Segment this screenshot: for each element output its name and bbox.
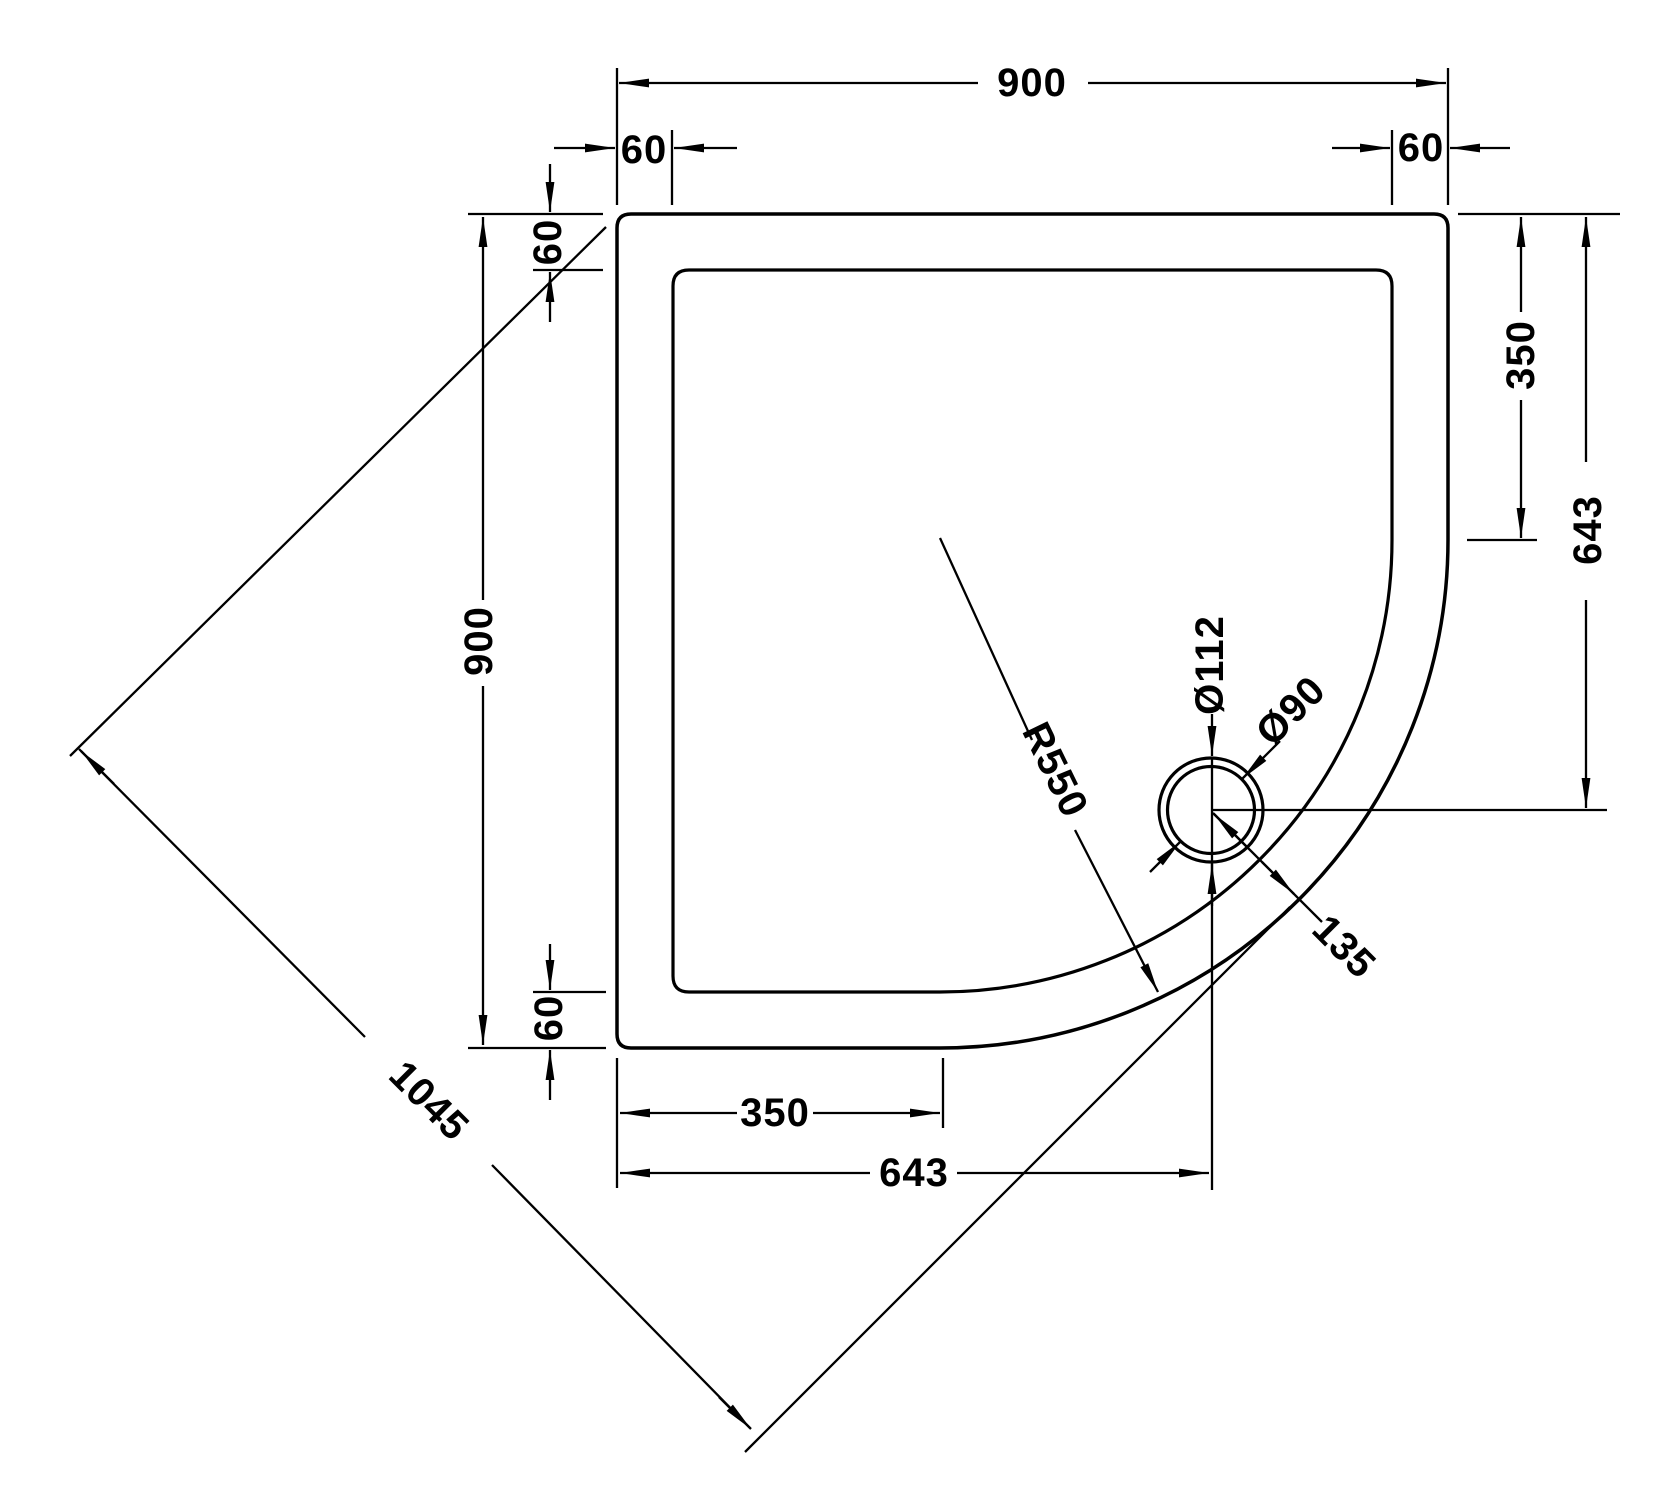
drawing-linework	[0, 0, 1653, 1499]
dim-right-drain-centre-label: 643	[1568, 495, 1608, 565]
dim-bottom-drain-centre-label: 643	[879, 1153, 949, 1193]
dim-bottom-curve-start-label: 350	[740, 1093, 810, 1133]
dim-left-bottom-inset-label: 60	[529, 995, 569, 1042]
dim-left-top-inset-label: 60	[528, 219, 568, 266]
dim-top-width-label: 900	[997, 63, 1067, 103]
dim-drain-outer-diameter-label: Ø112	[1190, 615, 1230, 715]
dim-right-curve-start-label: 350	[1501, 320, 1541, 390]
dim-top-right-inset-label: 60	[1398, 128, 1445, 168]
dim-left-depth-label: 900	[459, 606, 499, 676]
shower-tray-technical-drawing: 900 60 60 60 900 60 350 643 Ø112 Ø90 R55…	[0, 0, 1653, 1499]
dim-top-left-inset-label: 60	[621, 130, 668, 170]
